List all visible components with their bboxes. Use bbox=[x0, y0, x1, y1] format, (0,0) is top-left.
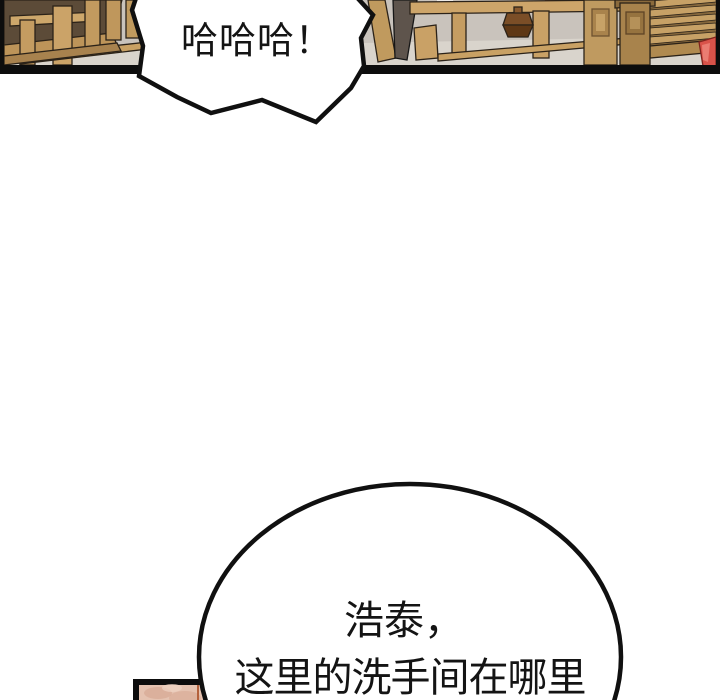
comic-page: 浩泰， 这里的洗手间在哪里 哈哈哈！ bbox=[0, 0, 720, 700]
skin-highlight bbox=[162, 684, 182, 692]
laugh-text: 哈哈哈！ bbox=[181, 19, 333, 62]
question-text-line1: 浩泰， bbox=[344, 598, 464, 644]
plank-carving-inner bbox=[596, 14, 605, 31]
hanging-lantern-base bbox=[503, 25, 533, 37]
comic-artwork: 浩泰， 这里的洗手间在哪里 哈哈哈！ bbox=[0, 0, 720, 700]
question-bubble: 浩泰， 这里的洗手间在哪里 bbox=[199, 484, 621, 700]
panel-border-left bbox=[0, 0, 4, 74]
wood-block bbox=[414, 25, 438, 60]
bench-post-panel-inner bbox=[630, 17, 640, 29]
chair-leg bbox=[85, 0, 100, 48]
panel-border-right bbox=[716, 0, 720, 74]
laugh-bubble: 哈哈哈！ bbox=[132, 0, 373, 122]
chair-leg bbox=[106, 0, 121, 40]
hanging-lantern bbox=[503, 13, 533, 25]
question-text-line2: 这里的洗手间在哪里 bbox=[235, 655, 586, 700]
hair-strand bbox=[197, 685, 199, 700]
